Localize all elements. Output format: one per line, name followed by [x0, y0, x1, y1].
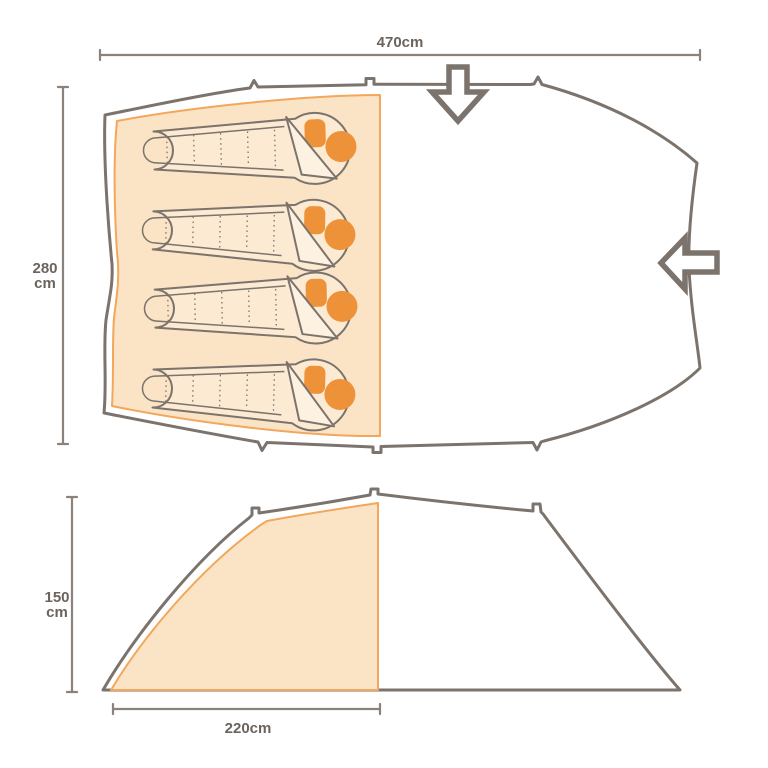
depth-dimension: 280 cm	[32, 87, 68, 444]
tent-dimensions-diagram: 470cm 280 cm 150 cm 220cm	[0, 0, 768, 768]
bedroom-width-dimension-label: 220cm	[225, 720, 272, 737]
width-dimension-label: 470cm	[377, 34, 424, 51]
bedroom-width-dimension: 220cm	[113, 704, 380, 737]
width-dimension: 470cm	[100, 34, 700, 60]
diagram-canvas: 470cm 280 cm 150 cm 220cm	[0, 0, 768, 768]
side-view: 150 cm 220cm	[44, 489, 680, 737]
bedroom-width-dimension-line	[113, 704, 380, 714]
height-dimension: 150 cm	[44, 497, 77, 692]
width-dimension-line	[100, 50, 700, 60]
top-view: 470cm 280 cm	[32, 34, 717, 453]
depth-dimension-unit: cm	[34, 275, 56, 292]
height-dimension-unit: cm	[46, 604, 68, 621]
depth-dimension-line	[58, 87, 68, 444]
